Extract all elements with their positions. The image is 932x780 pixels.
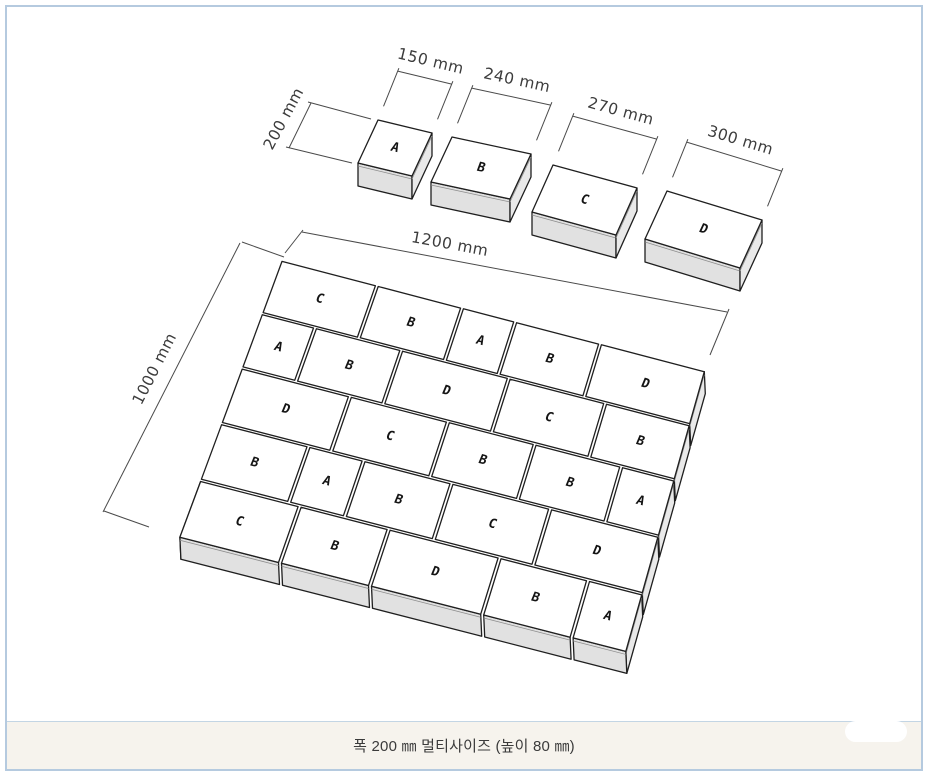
diagram-canvas: [7, 7, 921, 721]
watermark-patch: [845, 721, 907, 742]
footer-caption: 폭 200 ㎜ 멀티사이즈 (높이 80 ㎜): [353, 735, 575, 756]
page: 폭 200 ㎜ 멀티사이즈 (높이 80 ㎜): [5, 5, 923, 771]
footer-bar: 폭 200 ㎜ 멀티사이즈 (높이 80 ㎜): [7, 721, 921, 769]
